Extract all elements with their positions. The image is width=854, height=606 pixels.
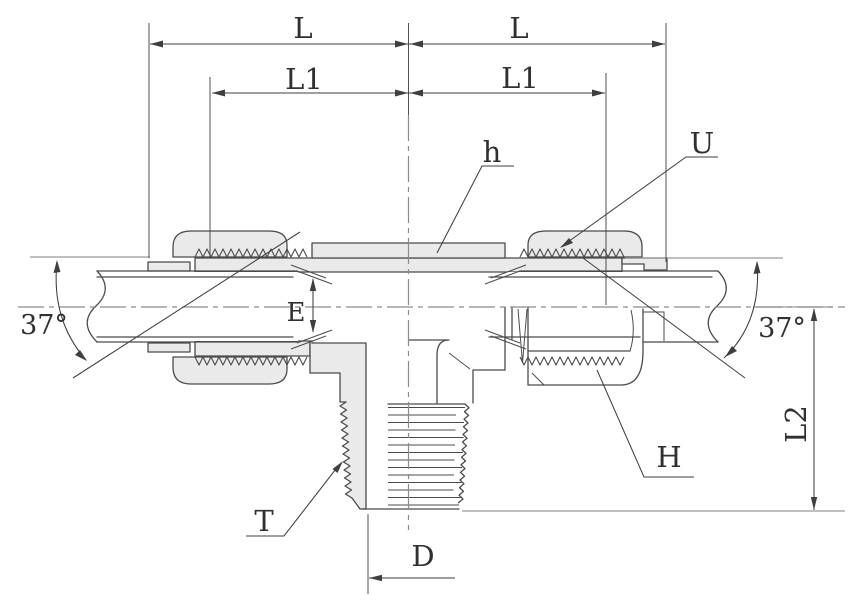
washer-upper-right [622,258,667,270]
leader-h [437,166,514,253]
dim-label-L-left: L [293,11,312,45]
branch-thread-edge [459,404,470,503]
technical-drawing-canvas: L L L1 L1 h U E 37° 37° T D H L2 [0,0,854,606]
part-label-H: H [656,440,681,474]
part-label-T: T [254,504,274,538]
left-nut-upper [173,231,287,257]
sleeve-lower-left [148,343,190,352]
elbow-fillet [409,340,449,403]
angle-label-left: 37° [20,310,68,341]
dim-label-L1-left: L1 [285,62,323,96]
angle-arc-right [724,262,758,358]
branch-thread-crests [388,408,465,506]
left-nut-lower [173,357,287,384]
part-label-h: h [483,135,502,169]
elbow-chamfer [449,353,470,369]
branch-section-left [310,341,366,509]
branch-shoulder [473,340,505,403]
right-nut-upper [528,231,642,257]
dim-label-L1-right: L1 [501,61,539,95]
sleeve-upper-left [148,262,190,271]
dim-D [369,575,455,581]
part-label-U: U [690,126,714,160]
dim-label-L-right: L [509,11,528,45]
drawing-page: L L L1 L1 h U E 37° 37° T D H L2 [0,0,854,606]
dim-label-L2: L2 [779,405,813,443]
dim-label-D: D [411,539,434,573]
dim-E [310,278,316,333]
angle-label-right: 37° [758,313,806,344]
dim-label-E: E [287,298,306,328]
right-port-thread-lower [520,357,624,365]
